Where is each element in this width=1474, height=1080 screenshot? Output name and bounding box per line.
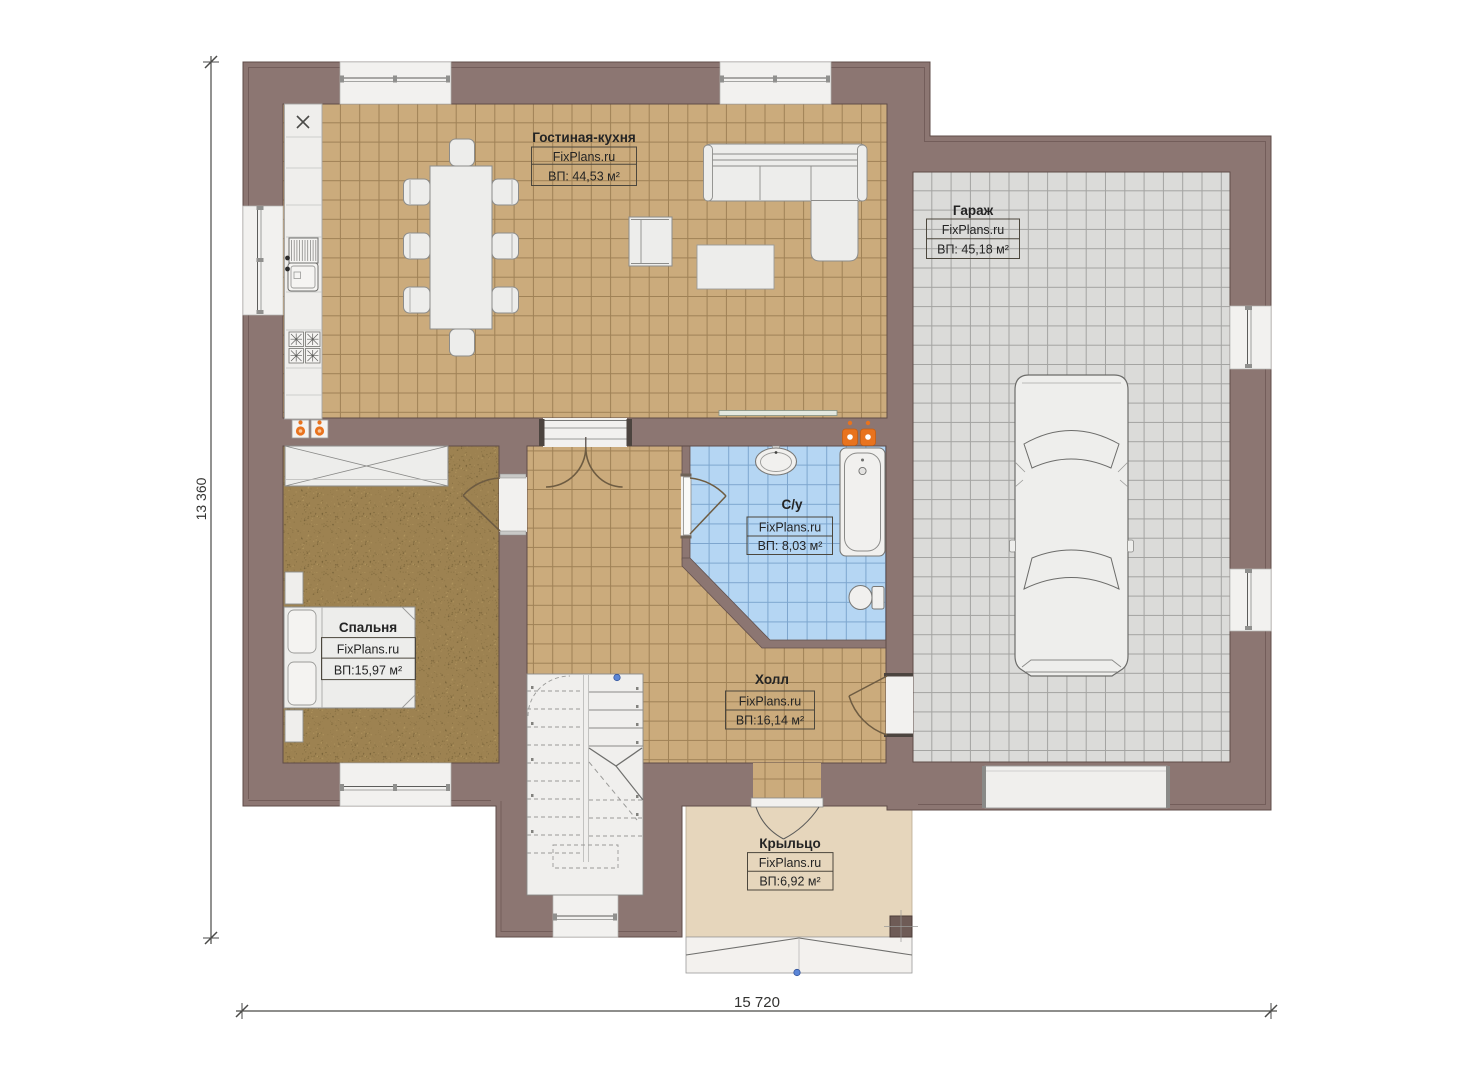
svg-text:ВП: 8,03 м²: ВП: 8,03 м² [758,539,823,553]
svg-text:FixPlans.ru: FixPlans.ru [553,150,616,164]
svg-text:ВП:15,97 м²: ВП:15,97 м² [334,664,402,678]
svg-text:ВП:6,92 м²: ВП:6,92 м² [759,875,820,889]
svg-text:Спальня: Спальня [339,620,397,635]
svg-text:13 360: 13 360 [193,477,209,520]
svg-text:Гараж: Гараж [953,203,994,218]
svg-text:Крыльцо: Крыльцо [759,836,820,851]
svg-text:Гостиная-кухня: Гостиная-кухня [532,130,635,145]
svg-text:ВП: 45,18 м²: ВП: 45,18 м² [937,243,1009,257]
svg-text:15 720: 15 720 [734,994,780,1011]
svg-text:С/у: С/у [781,497,803,512]
svg-text:FixPlans.ru: FixPlans.ru [337,643,400,657]
svg-text:FixPlans.ru: FixPlans.ru [942,223,1005,237]
svg-text:FixPlans.ru: FixPlans.ru [739,695,802,709]
svg-text:FixPlans.ru: FixPlans.ru [759,521,822,535]
svg-text:ВП:16,14 м²: ВП:16,14 м² [736,714,804,728]
svg-text:ВП: 44,53 м²: ВП: 44,53 м² [548,170,620,184]
svg-text:FixPlans.ru: FixPlans.ru [759,856,822,870]
svg-text:Холл: Холл [755,672,789,687]
